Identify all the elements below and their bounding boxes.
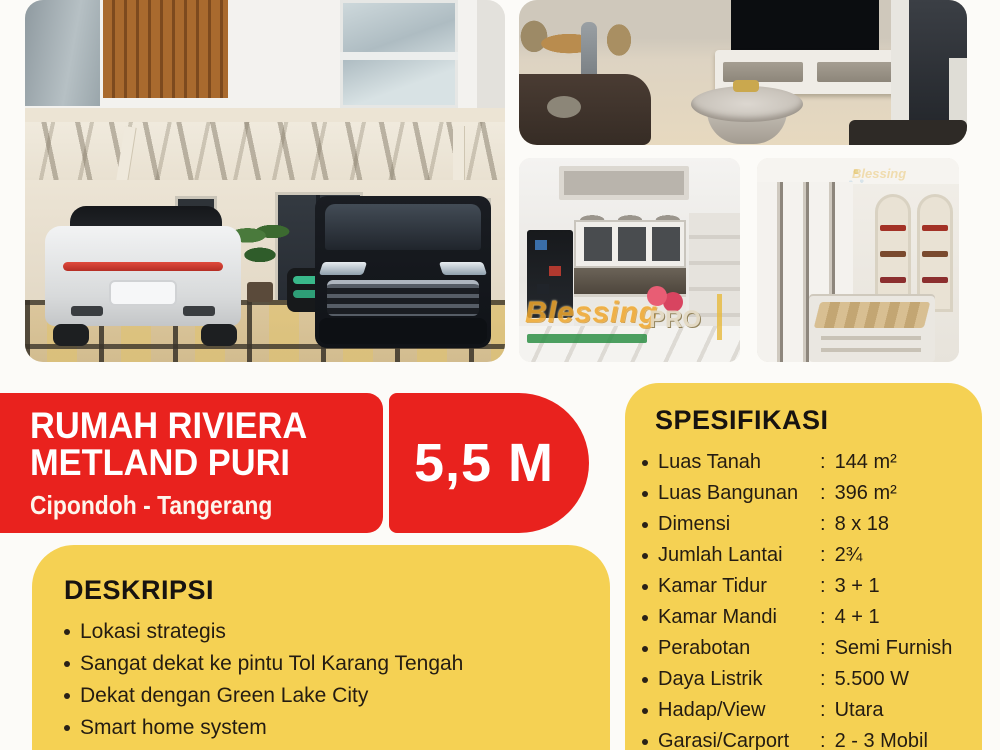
spec-label: Kamar Mandi (658, 607, 820, 628)
wood-slat-panel (103, 0, 228, 98)
spec-colon: : (820, 607, 826, 628)
cabinet-crown-molding (567, 210, 693, 220)
plant-pot (247, 282, 273, 302)
spec-value: 2 - 3 Mobil (835, 731, 928, 750)
suv-wheel (53, 324, 89, 346)
bullet-dot (642, 708, 648, 714)
title-line-2: METLAND PURI (30, 444, 358, 481)
desc-text: Lokasi strategis (80, 621, 226, 642)
van-windshield (325, 204, 481, 250)
desc-row: Dekat dengan Green Lake City (62, 685, 610, 706)
spec-row: Luas Tanah : 144 m² (640, 452, 982, 473)
suv-taillight-bar (63, 262, 223, 271)
facade-right-column (477, 0, 505, 112)
spec-colon: : (820, 483, 826, 504)
spec-row: Hadap/View : Utara (640, 700, 982, 721)
van-grille (327, 280, 479, 316)
white-pillar (891, 0, 909, 122)
suv-bumper-vent (183, 306, 215, 316)
spec-colon: : (820, 514, 826, 535)
wardrobe-photo: Blessing (757, 158, 959, 362)
bullet-dot (642, 584, 648, 590)
spec-label: Jumlah Lantai (658, 545, 820, 566)
spec-value: 4 + 1 (835, 607, 880, 628)
spec-row: Jumlah Lantai : 2¾ (640, 545, 982, 566)
arched-display-shelf (875, 194, 911, 312)
spec-value: 5.500 W (835, 669, 909, 690)
van-bumper (319, 318, 487, 344)
ottoman (849, 120, 967, 145)
deskripsi-box: DESKRIPSI Lokasi strategis Sangat dekat … (32, 545, 610, 750)
bullet-dot (642, 677, 648, 683)
title-box: RUMAH RIVIERA METLAND PURI Cipondoh - Ta… (0, 393, 383, 533)
bullet-dot (642, 460, 648, 466)
arched-display-shelf (917, 194, 953, 312)
suv-bumper-vent (71, 306, 103, 316)
island-drawer-unit (809, 296, 935, 362)
spec-row: Luas Bangunan : 396 m² (640, 483, 982, 504)
title-line-1: RUMAH RIVIERA (30, 407, 358, 444)
desc-row: Smart home system (62, 717, 610, 738)
spec-label: Kamar Tidur (658, 576, 820, 597)
desc-row: Lokasi strategis (62, 621, 610, 642)
desc-text: Smart home system (80, 717, 267, 738)
watermark-suffix: PRO (649, 306, 701, 334)
bullet-dot (642, 646, 648, 652)
spec-colon: : (820, 731, 826, 750)
spec-colon: : (820, 700, 826, 721)
spec-label: Daya Listrik (658, 669, 820, 690)
upper-glass-cabinet (574, 220, 686, 268)
spesifikasi-box: SPESIFIKASI Luas Tanah : 144 m² Luas Ban… (625, 383, 982, 750)
kitchen-counter (574, 268, 686, 294)
bullet-dot (64, 693, 70, 699)
location-text: Cipondoh - Tangerang (30, 490, 341, 521)
price-text: 5,5 M (414, 432, 564, 494)
bullet-dot (642, 522, 648, 528)
kitchen-photo: Blessing PRO (519, 158, 740, 362)
watermark-brand: Blessing (525, 296, 658, 330)
sofa-pillow (547, 96, 581, 118)
watermark-yellow-tick (717, 294, 722, 340)
suv-wheel (201, 324, 237, 346)
bullet-dot (642, 553, 648, 559)
spec-value: Utara (835, 700, 884, 721)
spec-value: 8 x 18 (835, 514, 889, 535)
pergola-lattice (25, 122, 505, 180)
suv-license-plate (111, 282, 175, 304)
ceiling-coffer (559, 166, 689, 200)
property-listing-poster: Blessing PRO Blessing RUMAH RIVIERA METL… (0, 0, 1000, 750)
spesifikasi-list: Luas Tanah : 144 m² Luas Bangunan : 396 … (640, 452, 982, 750)
bullet-dot (642, 491, 648, 497)
spec-label: Luas Bangunan (658, 483, 820, 504)
deskripsi-list: Lokasi strategis Sangat dekat ke pintu T… (62, 621, 610, 750)
wall-tv (731, 0, 879, 56)
pergola-beam (25, 108, 505, 122)
leather-sofa (519, 74, 651, 145)
bullet-dot (64, 629, 70, 635)
watermark: Blessing PRO (521, 294, 740, 354)
spec-label: Luas Tanah (658, 452, 820, 473)
spesifikasi-heading: SPESIFIKASI (640, 405, 982, 436)
bullet-dot (64, 725, 70, 731)
spec-colon: : (820, 638, 826, 659)
watermark-green-bar (527, 334, 647, 343)
spec-value: 396 m² (835, 483, 897, 504)
spec-row: Kamar Mandi : 4 + 1 (640, 607, 982, 628)
van-headlight (439, 262, 487, 275)
spec-value: 2¾ (835, 545, 863, 566)
spec-label: Hadap/View (658, 700, 820, 721)
faint-watermark: Blessing (852, 166, 906, 181)
desc-text: Dekat dengan Green Lake City (80, 685, 368, 706)
spec-row: Perabotan : Semi Furnish (640, 638, 982, 659)
facade-glass-left (25, 0, 100, 106)
house-exterior-photo (25, 0, 505, 362)
spec-label: Garasi/Carport (658, 731, 820, 750)
spec-colon: : (820, 669, 826, 690)
spec-label: Perabotan (658, 638, 820, 659)
spec-row: Garasi/Carport : 2 - 3 Mobil (640, 731, 982, 750)
deskripsi-heading: DESKRIPSI (62, 575, 610, 606)
bullet-dot (64, 661, 70, 667)
spec-colon: : (820, 452, 826, 473)
balcony-rail (340, 52, 458, 60)
living-room-photo (519, 0, 967, 145)
van-headlight (319, 262, 367, 275)
spec-label: Dimensi (658, 514, 820, 535)
bullet-dot (642, 615, 648, 621)
spec-value: 3 + 1 (835, 576, 880, 597)
bullet-dot (642, 739, 648, 745)
gold-tray (733, 80, 759, 92)
desc-row: Sangat dekat ke pintu Tol Karang Tengah (62, 653, 610, 674)
spec-value: Semi Furnish (835, 638, 953, 659)
desc-text: Sangat dekat ke pintu Tol Karang Tengah (80, 653, 463, 674)
spec-row: Dimensi : 8 x 18 (640, 514, 982, 535)
spec-row: Kamar Tidur : 3 + 1 (640, 576, 982, 597)
price-box: 5,5 M (389, 393, 589, 533)
spec-row: Daya Listrik : 5.500 W (640, 669, 982, 690)
spec-colon: : (820, 545, 826, 566)
spec-value: 144 m² (835, 452, 897, 473)
spec-colon: : (820, 576, 826, 597)
